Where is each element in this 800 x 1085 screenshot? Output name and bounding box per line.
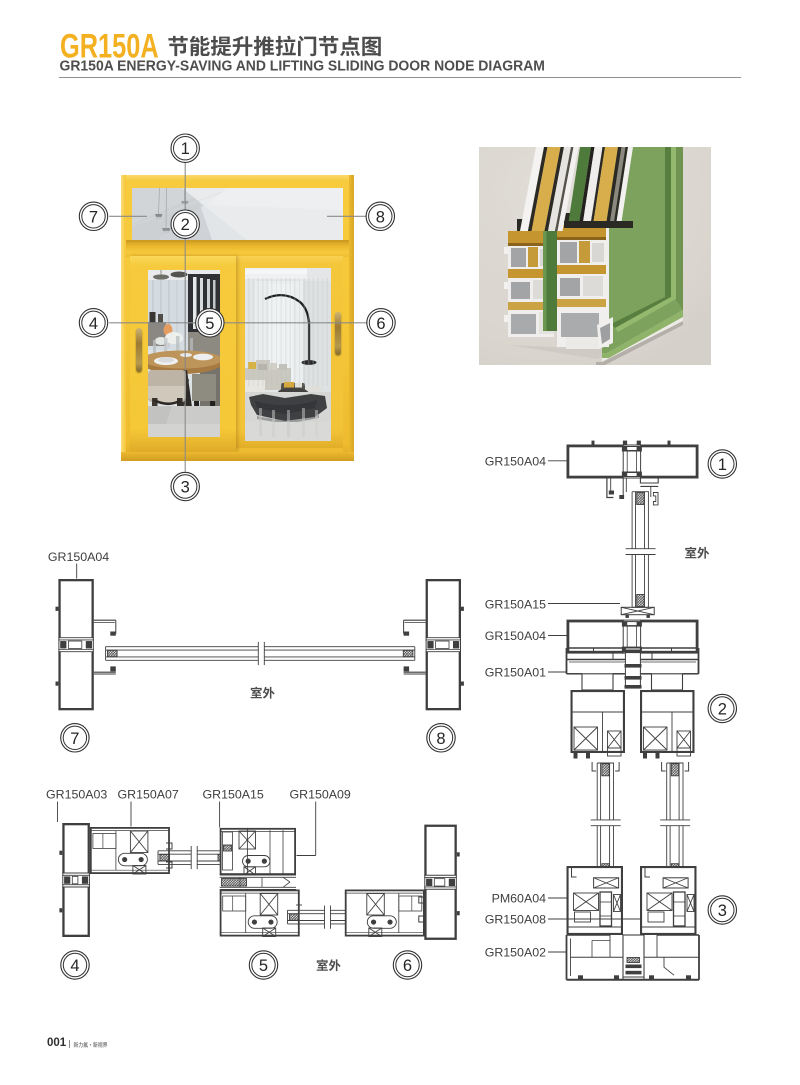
- svg-text:8: 8: [376, 208, 385, 226]
- svg-text:GR150A04: GR150A04: [485, 454, 546, 468]
- svg-text:GR150A08: GR150A08: [485, 913, 546, 927]
- svg-text:3: 3: [181, 479, 190, 497]
- svg-text:GR150A07: GR150A07: [118, 788, 179, 802]
- svg-text:5: 5: [259, 957, 268, 975]
- svg-text:1: 1: [718, 456, 727, 474]
- svg-text:GR150A15: GR150A15: [485, 597, 546, 611]
- svg-text:8: 8: [436, 730, 445, 748]
- svg-text:7: 7: [89, 208, 98, 226]
- svg-text:GR150A03: GR150A03: [46, 788, 107, 802]
- svg-text:6: 6: [376, 315, 385, 333]
- svg-text:PM60A04: PM60A04: [492, 891, 547, 905]
- svg-text:2: 2: [181, 216, 190, 234]
- svg-text:5: 5: [205, 315, 214, 333]
- svg-text:4: 4: [70, 957, 79, 975]
- svg-text:GR150A04: GR150A04: [48, 550, 109, 564]
- svg-text:3: 3: [718, 902, 727, 920]
- svg-text:1: 1: [181, 140, 190, 158]
- svg-text:GR150A09: GR150A09: [290, 788, 351, 802]
- svg-text:GR150A01: GR150A01: [485, 666, 546, 680]
- svg-text:GR150A02: GR150A02: [485, 946, 546, 960]
- svg-text:GR150A15: GR150A15: [203, 788, 264, 802]
- svg-text:2: 2: [718, 701, 727, 719]
- svg-text:4: 4: [89, 315, 98, 333]
- svg-text:6: 6: [403, 957, 412, 975]
- svg-text:7: 7: [70, 730, 79, 748]
- svg-text:GR150A ENERGY-SAVING AND LIFTI: GR150A ENERGY-SAVING AND LIFTING SLIDING…: [60, 58, 545, 74]
- svg-text:GR150A04: GR150A04: [485, 629, 546, 643]
